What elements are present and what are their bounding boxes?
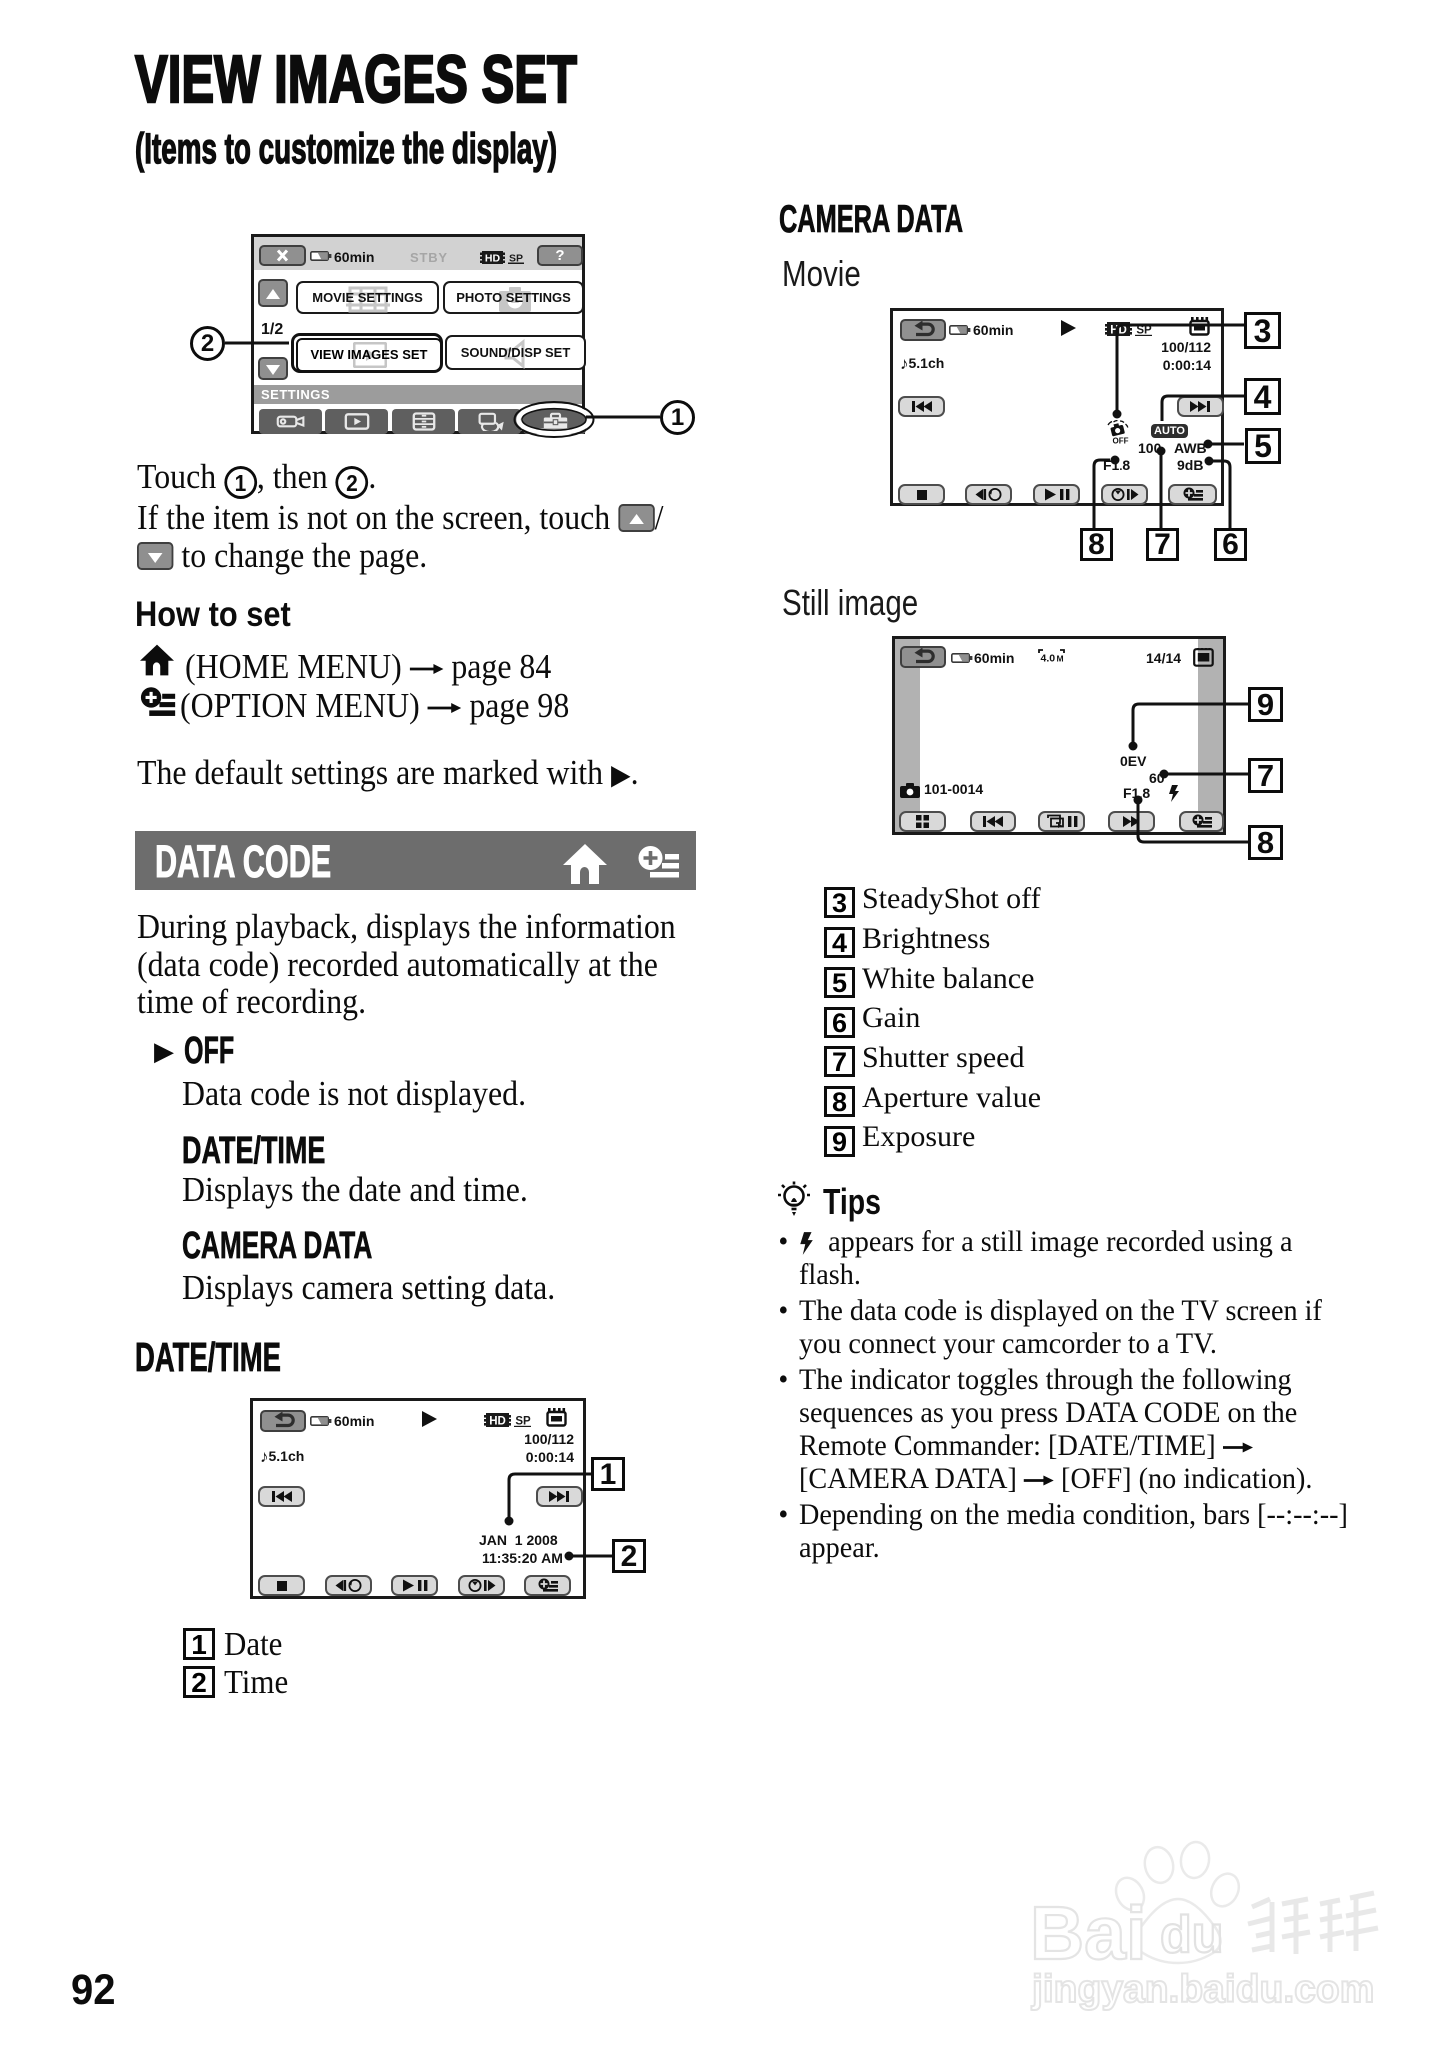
svg-text:OFF: OFF: [1113, 437, 1129, 446]
svg-text:M: M: [1057, 654, 1064, 664]
svg-text:jingyan.baidu.com: jingyan.baidu.com: [1031, 1968, 1374, 2011]
svg-text:HD: HD: [489, 1416, 506, 1428]
svg-text:SP: SP: [509, 253, 523, 265]
svg-text:SP: SP: [1136, 325, 1152, 337]
svg-text:4.0: 4.0: [1041, 653, 1056, 664]
svg-text:HD: HD: [485, 253, 501, 265]
svg-text:SP: SP: [515, 1416, 531, 1428]
svg-text:Bai: Bai: [1030, 1891, 1147, 1975]
svg-text:du: du: [1160, 1906, 1224, 1964]
svg-text:HD: HD: [1110, 325, 1127, 337]
